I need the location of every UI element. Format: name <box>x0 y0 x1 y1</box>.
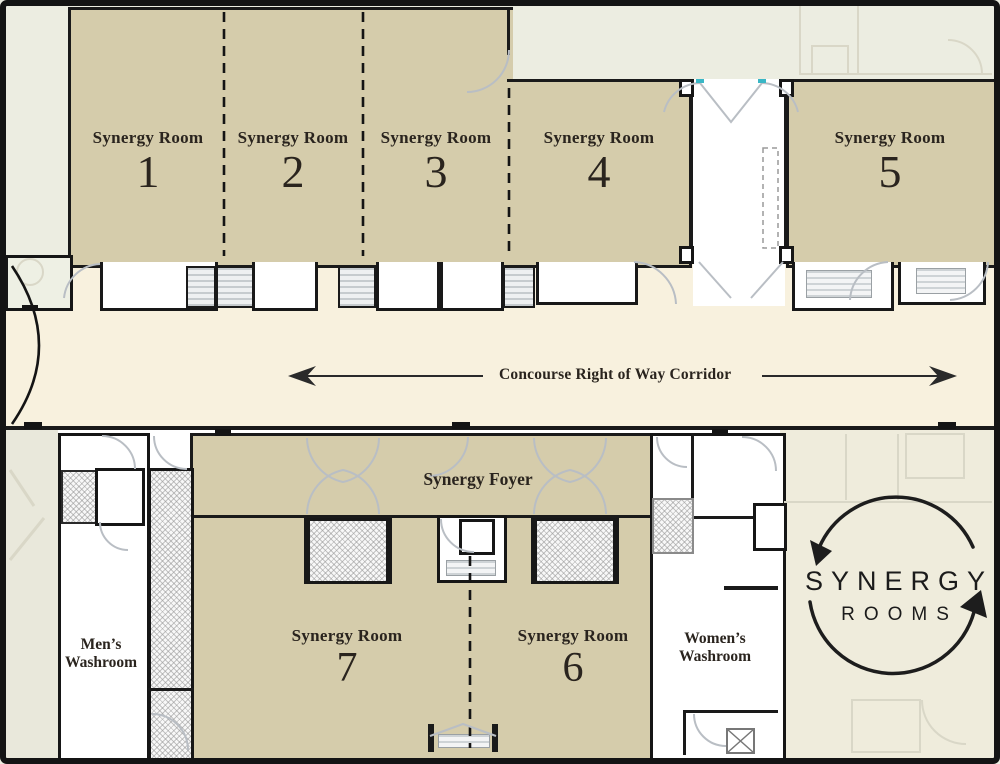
room-1-number: 1 <box>73 148 223 196</box>
womens-washroom-line2: Washroom <box>679 648 751 665</box>
mens-washroom-label: Men’s Washroom <box>39 636 163 673</box>
room-3-number: 3 <box>361 148 511 196</box>
room-4-label: Synergy Room 4 <box>524 128 674 196</box>
room-6-name: Synergy Room <box>498 626 648 646</box>
room-2-number: 2 <box>218 148 368 196</box>
wall-pocket-dashed <box>763 148 778 248</box>
room-6-number: 6 <box>498 646 648 690</box>
floor-drain-icon <box>727 729 754 753</box>
logo-wordmark-primary: SYNERGY <box>793 566 997 597</box>
room-4-name: Synergy Room <box>524 128 674 148</box>
corridor-arrow-right-icon <box>762 366 957 386</box>
mens-washroom-line1: Men’s <box>81 636 122 653</box>
room-5-number: 5 <box>815 148 965 196</box>
door-stop <box>215 429 231 436</box>
synergy-foyer-label: Synergy Foyer <box>353 469 603 490</box>
mens-washroom-line2: Washroom <box>65 654 137 671</box>
room-5-name: Synergy Room <box>815 128 965 148</box>
room-6-label: Synergy Room 6 <box>498 626 648 690</box>
door-stop <box>22 305 38 311</box>
corridor-arrow-left-icon <box>288 366 483 386</box>
womens-washroom-label: Women’s Washroom <box>653 630 777 667</box>
room-3-label: Synergy Room 3 <box>361 128 511 196</box>
logo-wordmark-secondary: ROOMS <box>793 604 997 626</box>
room-2-name: Synergy Room <box>218 128 368 148</box>
room-7-label: Synergy Room 7 <box>272 626 422 690</box>
curved-wall <box>12 266 39 424</box>
room-5-label: Synergy Room 5 <box>815 128 965 196</box>
room-1-label: Synergy Room 1 <box>73 128 223 196</box>
room-4-number: 4 <box>524 148 674 196</box>
door-stop <box>452 422 470 429</box>
room-7-name: Synergy Room <box>272 626 422 646</box>
teal-door-mark <box>758 79 766 83</box>
corridor-label: Concourse Right of Way Corridor <box>499 366 731 384</box>
room-3-name: Synergy Room <box>361 128 511 148</box>
womens-washroom-line1: Women’s <box>684 630 745 647</box>
teal-door-mark <box>696 79 704 83</box>
synergy-rooms-floor-plan: Men’s Washroom Synergy Foyer Women’s Was… <box>0 0 1000 764</box>
door-stop <box>938 422 956 429</box>
door-stop <box>24 422 42 429</box>
room-1-name: Synergy Room <box>73 128 223 148</box>
room-2-label: Synergy Room 2 <box>218 128 368 196</box>
room-7-number: 7 <box>272 646 422 690</box>
door-stop <box>712 429 728 436</box>
